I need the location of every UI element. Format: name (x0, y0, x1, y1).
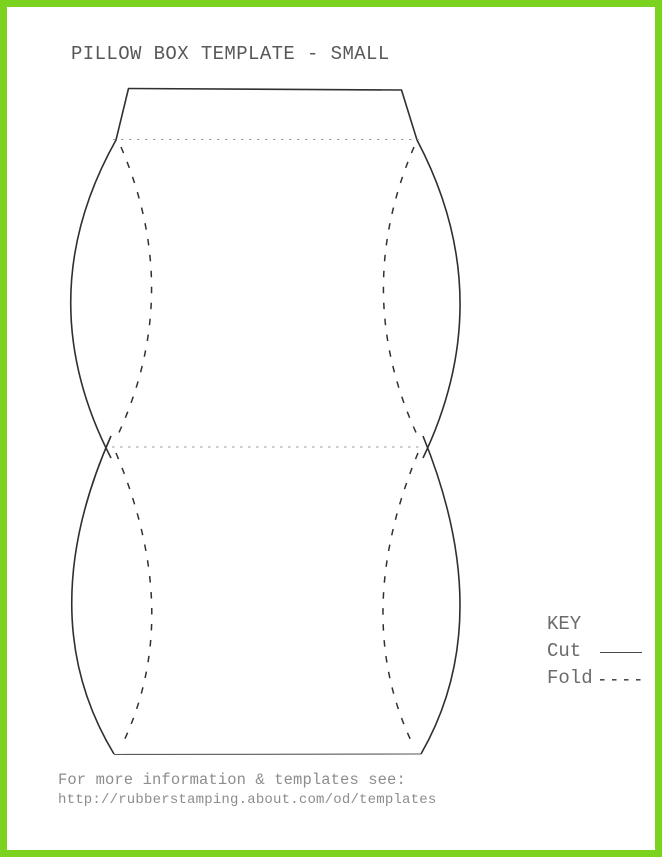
footer-note: For more information & templates see: ht… (58, 771, 436, 808)
template-page: PILLOW BOX TEMPLATE - SMALL KEY Cut Fold (0, 0, 662, 857)
cut-top-edge (128, 89, 402, 91)
cut-line-sample-icon (600, 652, 642, 654)
fold-curve-lower-left (116, 453, 152, 747)
fold-curve-upper-right (383, 147, 420, 441)
cut-lower-left-arc (72, 436, 114, 754)
cut-lower-right-arc (421, 436, 460, 754)
footer-info-text: For more information & templates see: (58, 771, 436, 789)
legend-cut-label: Cut (547, 638, 600, 665)
fold-curve-lower-right (383, 453, 418, 747)
cut-upper-right-arc (402, 90, 461, 458)
pillow-box-diagram (0, 0, 662, 857)
footer-url: http://rubberstamping.about.com/od/templ… (58, 792, 436, 808)
fold-line-sample-icon (600, 679, 647, 681)
legend-cut-row: Cut (547, 638, 647, 665)
fold-curve-upper-left (115, 147, 152, 441)
legend-fold-row: Fold (547, 665, 647, 692)
legend: KEY Cut Fold (547, 611, 647, 692)
cut-upper-left-arc (71, 89, 129, 459)
legend-heading-row: KEY (547, 611, 647, 638)
legend-heading: KEY (547, 611, 581, 638)
cut-bottom-edge (114, 754, 421, 755)
legend-fold-label: Fold (547, 665, 600, 692)
